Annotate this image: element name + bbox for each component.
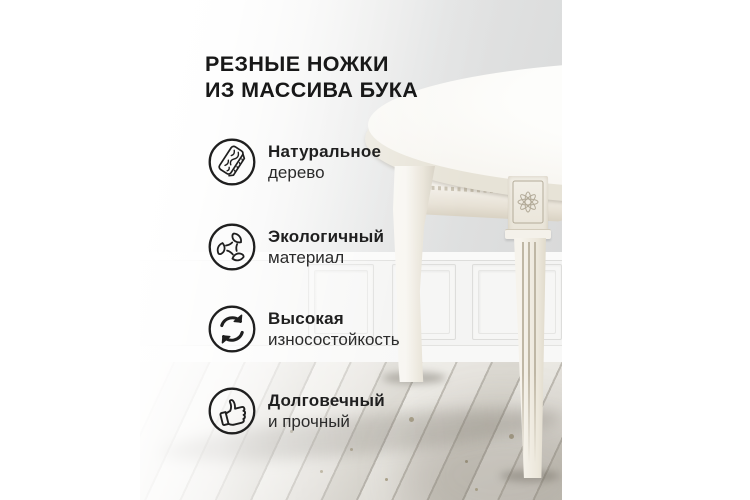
feature-line1: Высокая bbox=[268, 309, 400, 330]
feature-text: Натуральное дерево bbox=[268, 142, 381, 183]
feature-line1: Экологичный bbox=[268, 227, 384, 248]
feature-text: Долговечный и прочный bbox=[268, 391, 385, 432]
feature-eco-material: Экологичный материал bbox=[208, 223, 538, 271]
eco-leaves-icon bbox=[208, 223, 256, 271]
feature-line1: Натуральное bbox=[268, 142, 381, 163]
headline-line2: ИЗ МАССИВА БУКА bbox=[205, 78, 418, 104]
headline-line1: РЕЗНЫЕ НОЖКИ bbox=[205, 52, 418, 78]
feature-line2: дерево bbox=[268, 163, 381, 184]
feature-natural-wood: Натуральное дерево bbox=[208, 138, 538, 186]
feature-wear-resistance: Высокая износостойкость bbox=[208, 305, 538, 353]
headline: РЕЗНЫЕ НОЖКИ ИЗ МАССИВА БУКА bbox=[205, 52, 418, 103]
feature-text: Высокая износостойкость bbox=[268, 309, 400, 350]
feature-line2: и прочный bbox=[268, 412, 385, 433]
feature-durable: Долговечный и прочный bbox=[208, 387, 538, 435]
feature-line1: Долговечный bbox=[268, 391, 385, 412]
product-infographic: РЕЗНЫЕ НОЖКИ ИЗ МАССИВА БУКА Натуральное bbox=[0, 0, 750, 500]
sync-arrows-icon bbox=[208, 305, 256, 353]
thumbs-up-icon bbox=[208, 387, 256, 435]
feature-line2: износостойкость bbox=[268, 330, 400, 351]
wood-grain-icon bbox=[208, 138, 256, 186]
feature-text: Экологичный материал bbox=[268, 227, 384, 268]
feature-line2: материал bbox=[268, 248, 384, 269]
